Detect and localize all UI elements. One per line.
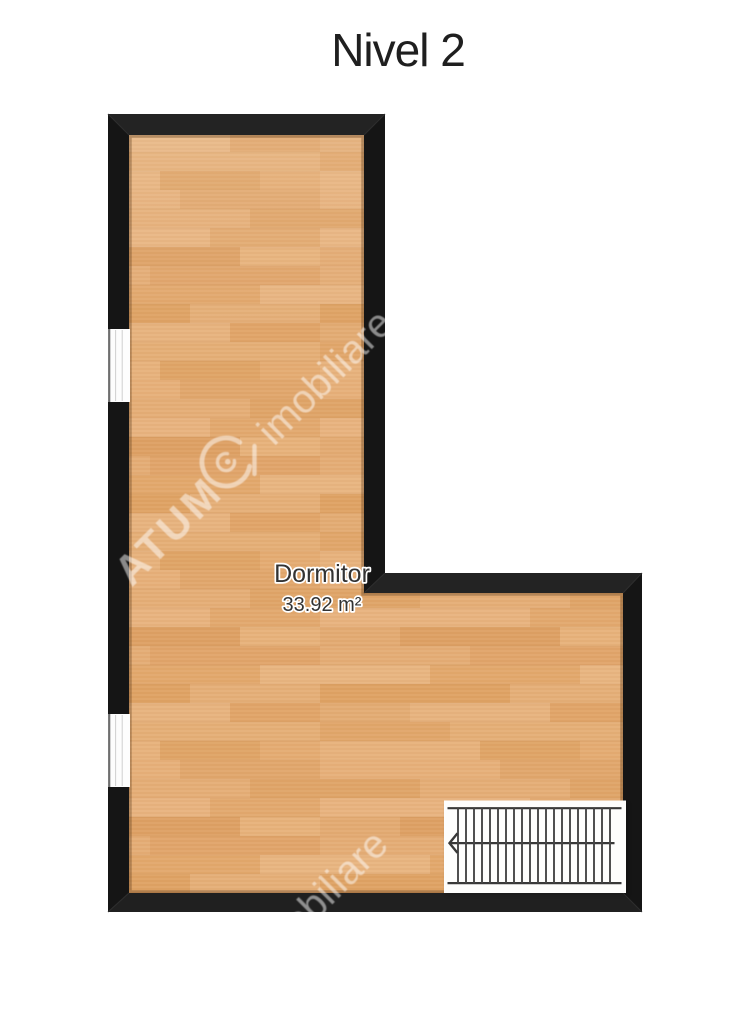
svg-text:Dormitor: Dormitor	[274, 560, 370, 588]
svg-text:Nivel 2: Nivel 2	[331, 24, 465, 76]
svg-text:33.92 m²: 33.92 m²	[283, 594, 362, 616]
svg-text:ATUM: ATUM	[100, 988, 227, 1024]
